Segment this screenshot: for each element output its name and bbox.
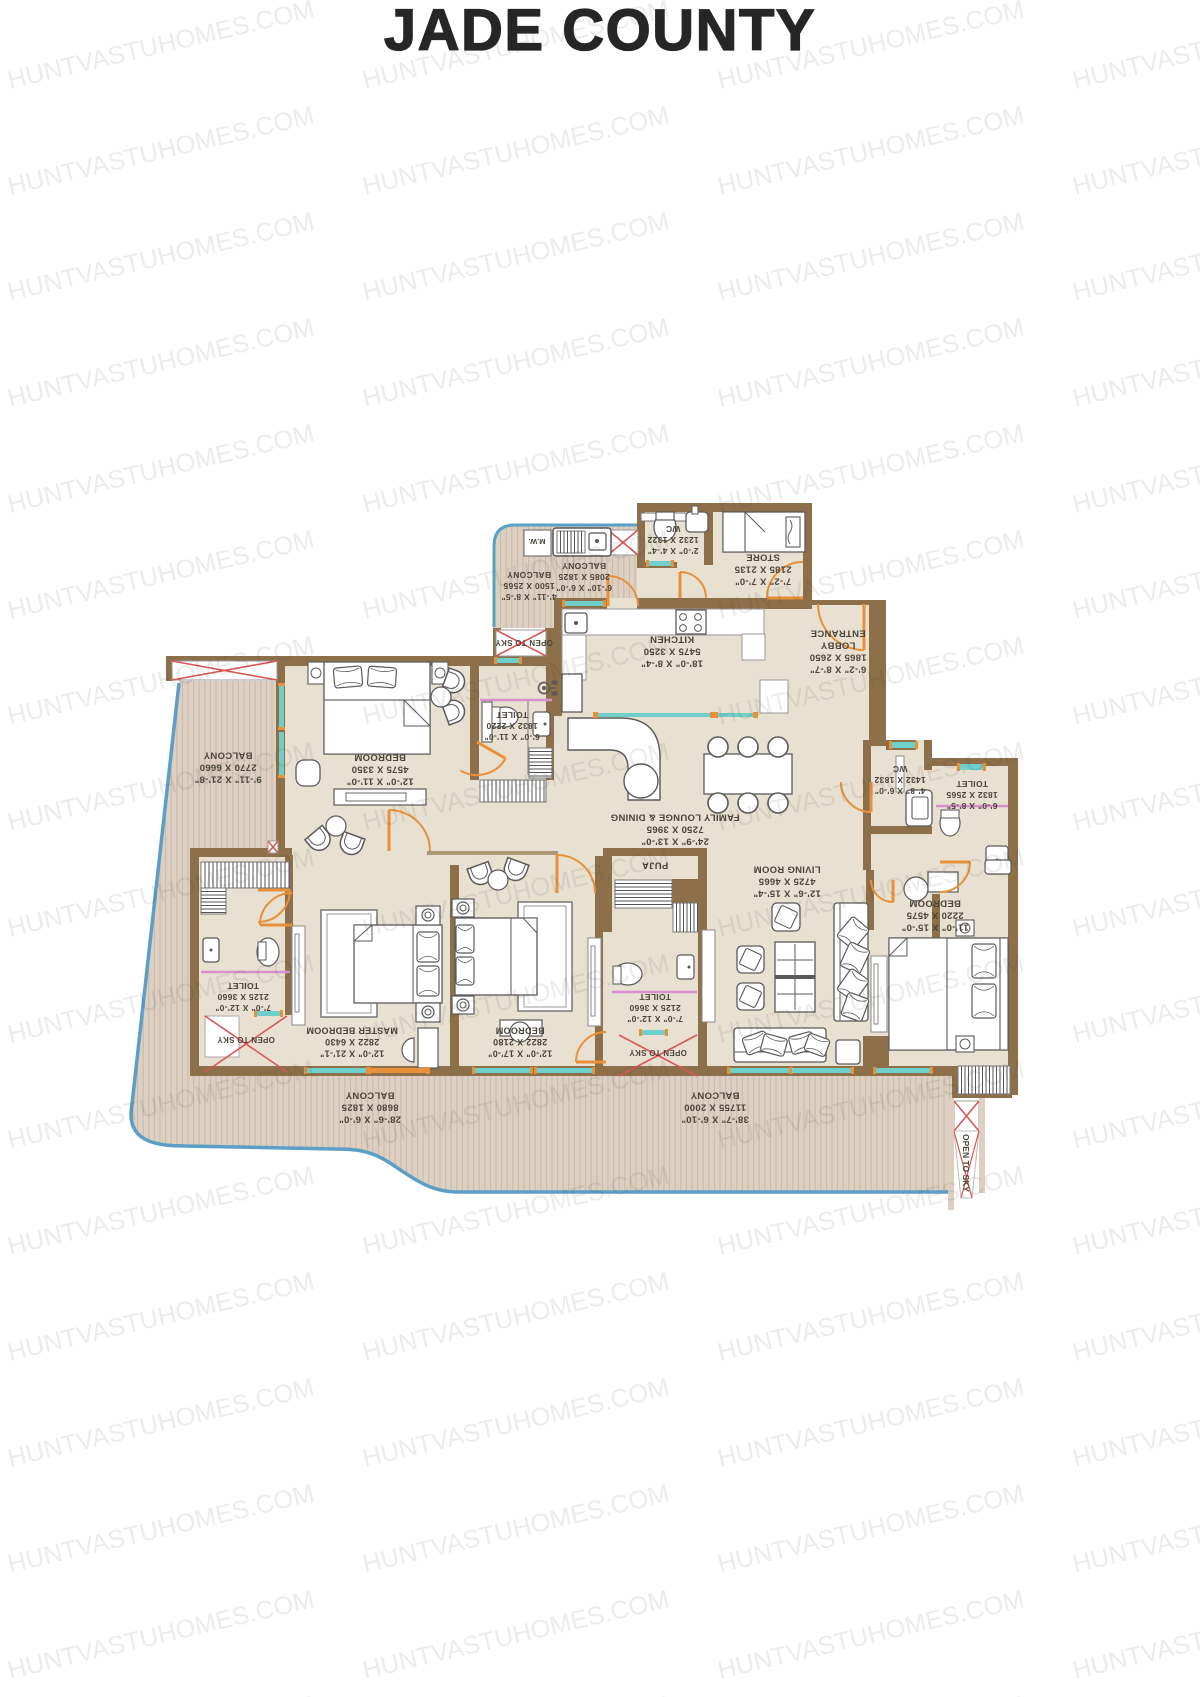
svg-text:HUNTVASTUHOMES.COM: HUNTVASTUHOMES.COM [1070, 843, 1200, 942]
svg-text:HUNTVASTUHOMES.COM: HUNTVASTUHOMES.COM [715, 1373, 1027, 1472]
svg-text:HUNTVASTUHOMES.COM: HUNTVASTUHOMES.COM [5, 419, 317, 518]
svg-text:HUNTVASTUHOMES.COM: HUNTVASTUHOMES.COM [715, 313, 1027, 412]
svg-text:LOBBY: LOBBY [820, 640, 855, 651]
svg-text:2822 X 2180: 2822 X 2180 [493, 1037, 547, 1047]
svg-text:STORE: STORE [746, 552, 780, 563]
svg-text:HUNTVASTUHOMES.COM: HUNTVASTUHOMES.COM [5, 207, 317, 306]
svg-text:HUNTVASTUHOMES.COM: HUNTVASTUHOMES.COM [1070, 1585, 1200, 1684]
svg-text:2185 X 2135: 2185 X 2135 [734, 564, 792, 575]
svg-text:HUNTVASTUHOMES.COM: HUNTVASTUHOMES.COM [1070, 313, 1200, 412]
svg-text:HUNTVASTUHOMES.COM: HUNTVASTUHOMES.COM [1070, 1267, 1200, 1366]
svg-text:HUNTVASTUHOMES.COM: HUNTVASTUHOMES.COM [360, 1479, 672, 1578]
svg-text:WC: WC [666, 524, 681, 534]
svg-text:2220 X 4575: 2220 X 4575 [906, 910, 964, 921]
svg-text:BALCONY: BALCONY [345, 1090, 394, 1101]
svg-text:12'-0" X 11'-0": 12'-0" X 11'-0" [346, 776, 413, 787]
svg-text:ENTRANCE: ENTRANCE [810, 628, 865, 639]
svg-text:1865 X 2650: 1865 X 2650 [809, 652, 866, 663]
svg-text:4'-11" X 8'-5": 4'-11" X 8'-5" [501, 592, 557, 602]
svg-text:BEDROOM: BEDROOM [909, 898, 961, 909]
svg-text:HUNTVASTUHOMES.COM: HUNTVASTUHOMES.COM [715, 1585, 1027, 1684]
svg-text:HUNTVASTUHOMES.COM: HUNTVASTUHOMES.COM [1070, 949, 1200, 1048]
svg-text:HUNTVASTUHOMES.COM: HUNTVASTUHOMES.COM [5, 1691, 317, 1697]
svg-text:TOILET: TOILET [956, 779, 988, 789]
svg-text:HUNTVASTUHOMES.COM: HUNTVASTUHOMES.COM [5, 1585, 317, 1684]
svg-text:HUNTVASTUHOMES.COM: HUNTVASTUHOMES.COM [1070, 1161, 1200, 1260]
svg-text:11'-0" X 15'-0": 11'-0" X 15'-0" [901, 922, 968, 933]
svg-text:HUNTVASTUHOMES.COM: HUNTVASTUHOMES.COM [1070, 631, 1200, 730]
svg-text:HUNTVASTUHOMES.COM: HUNTVASTUHOMES.COM [715, 419, 1027, 518]
svg-text:HUNTVASTUHOMES.COM: HUNTVASTUHOMES.COM [1070, 737, 1200, 836]
svg-text:1832 X 2220: 1832 X 2220 [486, 721, 538, 731]
svg-text:OPEN TO SKY: OPEN TO SKY [217, 1035, 275, 1044]
svg-text:OPEN TO SKY: OPEN TO SKY [629, 1048, 687, 1057]
svg-text:6'-0" X 11'-0": 6'-0" X 11'-0" [484, 732, 540, 742]
svg-text:TOILET: TOILET [496, 710, 528, 720]
svg-text:HUNTVASTUHOMES.COM: HUNTVASTUHOMES.COM [1070, 1691, 1200, 1697]
svg-text:BALCONY: BALCONY [690, 1090, 739, 1101]
svg-text:HUNTVASTUHOMES.COM: HUNTVASTUHOMES.COM [715, 101, 1027, 200]
svg-text:HUNTVASTUHOMES.COM: HUNTVASTUHOMES.COM [715, 1691, 1027, 1697]
svg-text:BEDROOM: BEDROOM [354, 752, 406, 763]
svg-text:HUNTVASTUHOMES.COM: HUNTVASTUHOMES.COM [360, 1267, 672, 1366]
svg-text:HUNTVASTUHOMES.COM: HUNTVASTUHOMES.COM [360, 1373, 672, 1472]
svg-text:M.W.: M.W. [528, 537, 545, 546]
svg-text:7'-0" X 12'-0": 7'-0" X 12'-0" [215, 1003, 271, 1013]
svg-text:HUNTVASTUHOMES.COM: HUNTVASTUHOMES.COM [360, 1585, 672, 1684]
svg-text:BEDROOM: BEDROOM [495, 1025, 544, 1035]
svg-text:HUNTVASTUHOMES.COM: HUNTVASTUHOMES.COM [1070, 1479, 1200, 1578]
svg-text:24'-9" X 13'-0": 24'-9" X 13'-0" [641, 836, 709, 847]
svg-text:HUNTVASTUHOMES.COM: HUNTVASTUHOMES.COM [715, 1479, 1027, 1578]
svg-text:HUNTVASTUHOMES.COM: HUNTVASTUHOMES.COM [360, 207, 672, 306]
svg-text:12'-0" X 21'-1": 12'-0" X 21'-1" [320, 1048, 384, 1058]
svg-text:HUNTVASTUHOMES.COM: HUNTVASTUHOMES.COM [5, 1373, 317, 1472]
svg-text:HUNTVASTUHOMES.COM: HUNTVASTUHOMES.COM [5, 101, 317, 200]
svg-text:HUNTVASTUHOMES.COM: HUNTVASTUHOMES.COM [1070, 525, 1200, 624]
svg-text:HUNTVASTUHOMES.COM: HUNTVASTUHOMES.COM [1070, 207, 1200, 306]
svg-text:HUNTVASTUHOMES.COM: HUNTVASTUHOMES.COM [715, 207, 1027, 306]
svg-text:6'-0" X 8'-5": 6'-0" X 8'-5" [947, 801, 998, 811]
svg-text:HUNTVASTUHOMES.COM: HUNTVASTUHOMES.COM [5, 1161, 317, 1260]
svg-text:11755 X 2000: 11755 X 2000 [684, 1102, 746, 1113]
svg-text:HUNTVASTUHOMES.COM: HUNTVASTUHOMES.COM [360, 1691, 672, 1697]
svg-text:HUNTVASTUHOMES.COM: HUNTVASTUHOMES.COM [360, 313, 672, 412]
svg-text:HUNTVASTUHOMES.COM: HUNTVASTUHOMES.COM [715, 1267, 1027, 1366]
svg-text:LIVING ROOM: LIVING ROOM [753, 864, 820, 875]
svg-text:8680 X 1825: 8680 X 1825 [341, 1102, 399, 1113]
svg-text:HUNTVASTUHOMES.COM: HUNTVASTUHOMES.COM [5, 525, 317, 624]
svg-text:HUNTVASTUHOMES.COM: HUNTVASTUHOMES.COM [360, 419, 672, 518]
svg-text:2125 X 3660: 2125 X 3660 [629, 1003, 681, 1013]
svg-text:TOILET: TOILET [639, 992, 671, 1002]
svg-text:HUNTVASTUHOMES.COM: HUNTVASTUHOMES.COM [360, 101, 672, 200]
svg-text:6'-10" X 6'-0": 6'-10" X 6'-0" [556, 583, 612, 593]
svg-text:HUNTVASTUHOMES.COM: HUNTVASTUHOMES.COM [5, 313, 317, 412]
svg-text:HUNTVASTUHOMES.COM: HUNTVASTUHOMES.COM [5, 1267, 317, 1366]
svg-text:4575 X 3350: 4575 X 3350 [351, 764, 408, 775]
svg-text:HUNTVASTUHOMES.COM: HUNTVASTUHOMES.COM [1070, 1373, 1200, 1472]
svg-text:12'-0" X 17'-0": 12'-0" X 17'-0" [488, 1048, 552, 1058]
svg-text:7250 X 3965: 7250 X 3965 [646, 824, 704, 835]
svg-text:HUNTVASTUHOMES.COM: HUNTVASTUHOMES.COM [1070, 1055, 1200, 1154]
svg-text:OPEN TO SKY: OPEN TO SKY [495, 638, 553, 647]
svg-text:HUNTVASTUHOMES.COM: HUNTVASTUHOMES.COM [1070, 419, 1200, 518]
svg-text:1832 X 2565: 1832 X 2565 [946, 790, 998, 800]
svg-text:HUNTVASTUHOMES.COM: HUNTVASTUHOMES.COM [1070, 101, 1200, 200]
svg-text:7'-0" X 12'-0": 7'-0" X 12'-0" [627, 1014, 683, 1024]
svg-text:HUNTVASTUHOMES.COM: HUNTVASTUHOMES.COM [5, 1479, 317, 1578]
svg-text:4725 X 4665: 4725 X 4665 [758, 876, 816, 887]
